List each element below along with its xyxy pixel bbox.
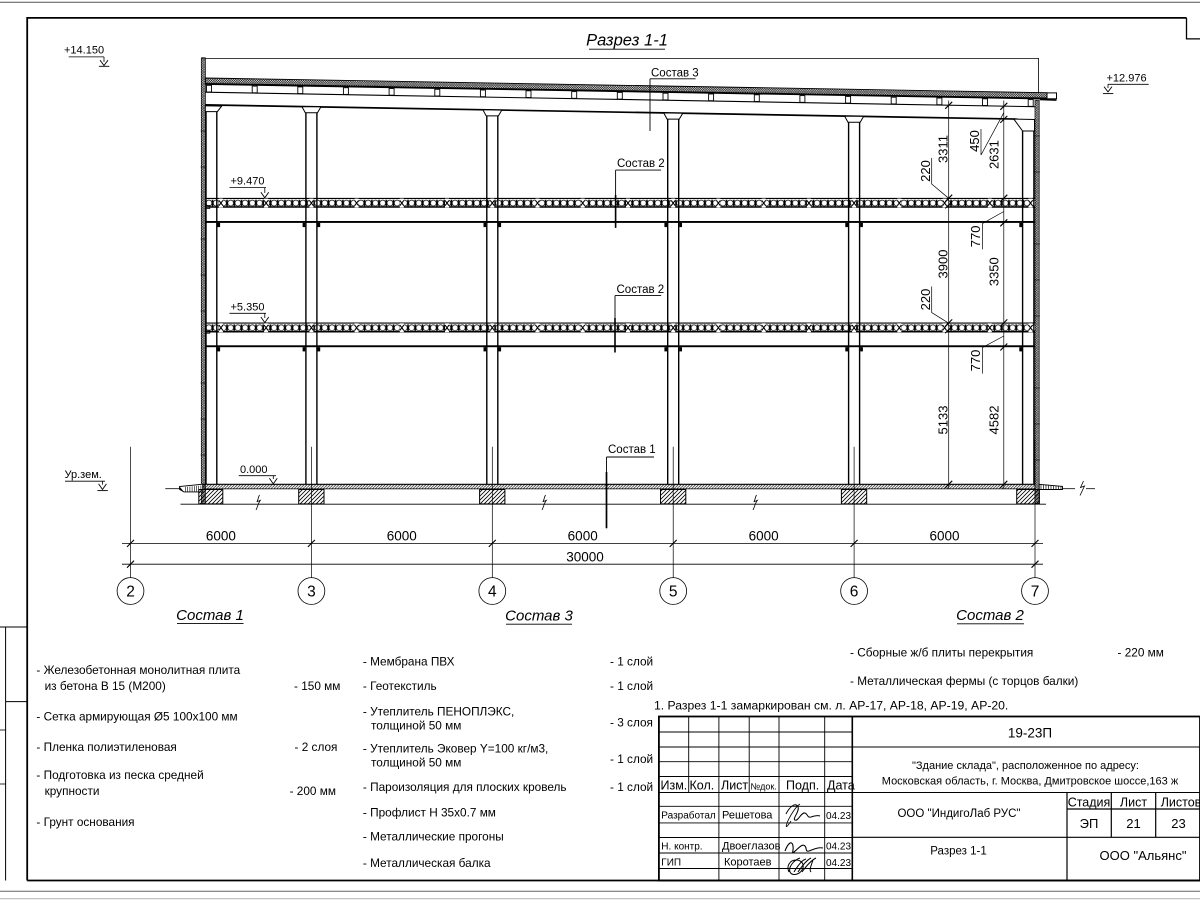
svg-text:2631: 2631 bbox=[986, 140, 1001, 169]
svg-text:- 1 слой: - 1 слой bbox=[610, 752, 653, 766]
svg-text:3900: 3900 bbox=[935, 250, 950, 279]
svg-text:Состав 2: Состав 2 bbox=[617, 284, 665, 296]
svg-text:5: 5 bbox=[669, 584, 678, 601]
svg-text:04.23: 04.23 bbox=[826, 811, 851, 822]
svg-text:Листов: Листов bbox=[1161, 796, 1200, 810]
svg-text:- Подготовка из песка средней: - Подготовка из песка средней bbox=[36, 768, 203, 782]
svg-text:Ур.зем.: Ур.зем. bbox=[65, 469, 102, 481]
svg-text:Лист: Лист bbox=[1120, 796, 1147, 810]
svg-text:ЭП: ЭП bbox=[1080, 816, 1099, 831]
svg-text:Состав 2: Состав 2 bbox=[956, 607, 1024, 624]
svg-text:Кол.: Кол. bbox=[690, 779, 715, 793]
svg-text:- Железобетонная монолитная п: - Железобетонная монолитная плита bbox=[36, 663, 240, 677]
svg-text:- Металлические прогоны: - Металлические прогоны bbox=[363, 830, 504, 844]
svg-text:Дата: Дата bbox=[827, 779, 855, 793]
svg-text:- 150 мм: - 150 мм bbox=[294, 679, 340, 693]
svg-text:220: 220 bbox=[918, 160, 933, 182]
svg-text:- Профлист Н 35х0.7 мм: - Профлист Н 35х0.7 мм bbox=[363, 806, 496, 820]
svg-text:Состав 1: Состав 1 bbox=[176, 607, 244, 624]
svg-text:19-23П: 19-23П bbox=[1008, 726, 1052, 741]
svg-text:Состав 1: Состав 1 bbox=[608, 444, 656, 456]
svg-text:- Мембрана ПВХ: - Мембрана ПВХ bbox=[363, 654, 455, 668]
svg-text:Изм.: Изм. bbox=[661, 779, 688, 793]
svg-text:- Металлическая фермы (с торцо: - Металлическая фермы (с торцов балки) bbox=[850, 674, 1078, 688]
svg-text:- Сборные ж/б плиты перекрытия: - Сборные ж/б плиты перекрытия bbox=[850, 646, 1033, 660]
svg-text:+9.470: +9.470 bbox=[231, 176, 265, 188]
svg-text:№док.: №док. bbox=[751, 782, 777, 792]
svg-text:6000: 6000 bbox=[206, 529, 236, 544]
svg-text:220: 220 bbox=[918, 289, 933, 311]
svg-text:ООО "Альянс": ООО "Альянс" bbox=[1100, 848, 1187, 863]
svg-text:ООО "ИндигоЛаб РУС": ООО "ИндигоЛаб РУС" bbox=[897, 808, 1020, 820]
svg-text:Разработал: Разработал bbox=[661, 810, 716, 822]
svg-text:23: 23 bbox=[1171, 816, 1185, 831]
svg-text:- Утеплитель Эковер Y=100 кг/м: - Утеплитель Эковер Y=100 кг/м3, bbox=[363, 741, 548, 755]
svg-text:толщиной 50 мм: толщиной 50 мм bbox=[371, 719, 461, 733]
svg-text:крупности: крупности bbox=[45, 784, 100, 798]
svg-text:6: 6 bbox=[850, 584, 859, 601]
svg-text:- 220 мм: - 220 мм bbox=[1118, 646, 1164, 660]
svg-text:"Здание склада", расположенное: "Здание склада", расположенное по адресу… bbox=[912, 760, 1139, 772]
svg-text:- 1 слой: - 1 слой bbox=[610, 780, 653, 794]
svg-text:- 2 слоя: - 2 слоя bbox=[295, 740, 338, 754]
svg-text:04.23: 04.23 bbox=[826, 842, 851, 853]
svg-text:- Сетка армирующая Ø5 100х100: - Сетка армирующая Ø5 100х100 мм bbox=[36, 710, 237, 724]
svg-text:Двоеглазов: Двоеглазов bbox=[722, 841, 781, 853]
svg-text:7: 7 bbox=[1031, 584, 1040, 601]
svg-text:5133: 5133 bbox=[935, 406, 950, 435]
svg-text:450: 450 bbox=[967, 130, 982, 152]
svg-text:Подп.: Подп. bbox=[786, 779, 819, 793]
svg-text:- Утеплитель ПЕНОПЛЭКС,: - Утеплитель ПЕНОПЛЭКС, bbox=[363, 704, 514, 718]
svg-text:3311: 3311 bbox=[935, 135, 950, 163]
svg-text:- 200 мм: - 200 мм bbox=[290, 784, 336, 798]
svg-text:Разрез 1-1: Разрез 1-1 bbox=[930, 846, 986, 858]
svg-text:6000: 6000 bbox=[568, 529, 598, 544]
svg-text:Состав 3: Состав 3 bbox=[505, 608, 573, 625]
svg-text:+14.150: +14.150 bbox=[64, 44, 104, 56]
svg-text:толщиной 50 мм: толщиной 50 мм bbox=[371, 756, 461, 770]
svg-text:2: 2 bbox=[126, 584, 135, 601]
svg-text:770: 770 bbox=[968, 350, 983, 372]
svg-text:4: 4 bbox=[488, 584, 497, 601]
svg-text:4582: 4582 bbox=[986, 406, 1001, 435]
svg-text:770: 770 bbox=[968, 226, 983, 248]
svg-text:Состав 2: Состав 2 bbox=[617, 158, 665, 170]
svg-text:- Пленка полиэтиленовая: - Пленка полиэтиленовая bbox=[36, 740, 176, 754]
svg-text:Разрез 1-1: Разрез 1-1 bbox=[586, 31, 668, 49]
svg-text:6000: 6000 bbox=[929, 529, 959, 544]
svg-text:04.23: 04.23 bbox=[826, 858, 851, 869]
svg-text:21: 21 bbox=[1126, 816, 1140, 831]
svg-text:3: 3 bbox=[307, 584, 316, 601]
svg-text:- 3 слоя: - 3 слоя bbox=[610, 716, 653, 730]
svg-text:- Геотекстиль: - Геотекстиль bbox=[363, 679, 437, 693]
svg-text:Состав 3: Состав 3 bbox=[651, 67, 699, 79]
svg-text:- 1 слой: - 1 слой bbox=[610, 679, 653, 693]
svg-text:- Грунт основания: - Грунт основания bbox=[36, 815, 134, 829]
svg-text:ГИП: ГИП bbox=[661, 858, 681, 869]
svg-text:6000: 6000 bbox=[387, 529, 417, 544]
svg-text:1. Разрез 1-1 замаркирован см.: 1. Разрез 1-1 замаркирован см. л. АР-17,… bbox=[654, 699, 1008, 713]
svg-text:Н. контр.: Н. контр. bbox=[661, 842, 702, 853]
svg-text:Решетова: Решетова bbox=[722, 810, 773, 822]
svg-text:- 1 слой: - 1 слой bbox=[610, 654, 653, 668]
svg-text:Лист: Лист bbox=[721, 779, 748, 793]
svg-text:Стадия: Стадия bbox=[1068, 796, 1111, 810]
svg-text:Коротаев: Коротаев bbox=[724, 857, 772, 869]
svg-text:+12.976: +12.976 bbox=[1107, 73, 1147, 85]
svg-text:Московская область, г. Москва,: Московская область, г. Москва, Дмитровск… bbox=[882, 775, 1179, 787]
svg-text:3350: 3350 bbox=[986, 257, 1001, 286]
svg-text:- Пароизоляция для плоских кро: - Пароизоляция для плоских кровель bbox=[363, 780, 567, 794]
svg-text:6000: 6000 bbox=[749, 529, 779, 544]
svg-text:- Металлическая балка: - Металлическая балка bbox=[363, 856, 491, 870]
svg-text:из бетона В 15 (М200): из бетона В 15 (М200) bbox=[45, 679, 166, 693]
svg-text:+5.350: +5.350 bbox=[231, 301, 265, 313]
svg-text:30000: 30000 bbox=[566, 549, 604, 564]
svg-text:0.000: 0.000 bbox=[240, 464, 268, 476]
